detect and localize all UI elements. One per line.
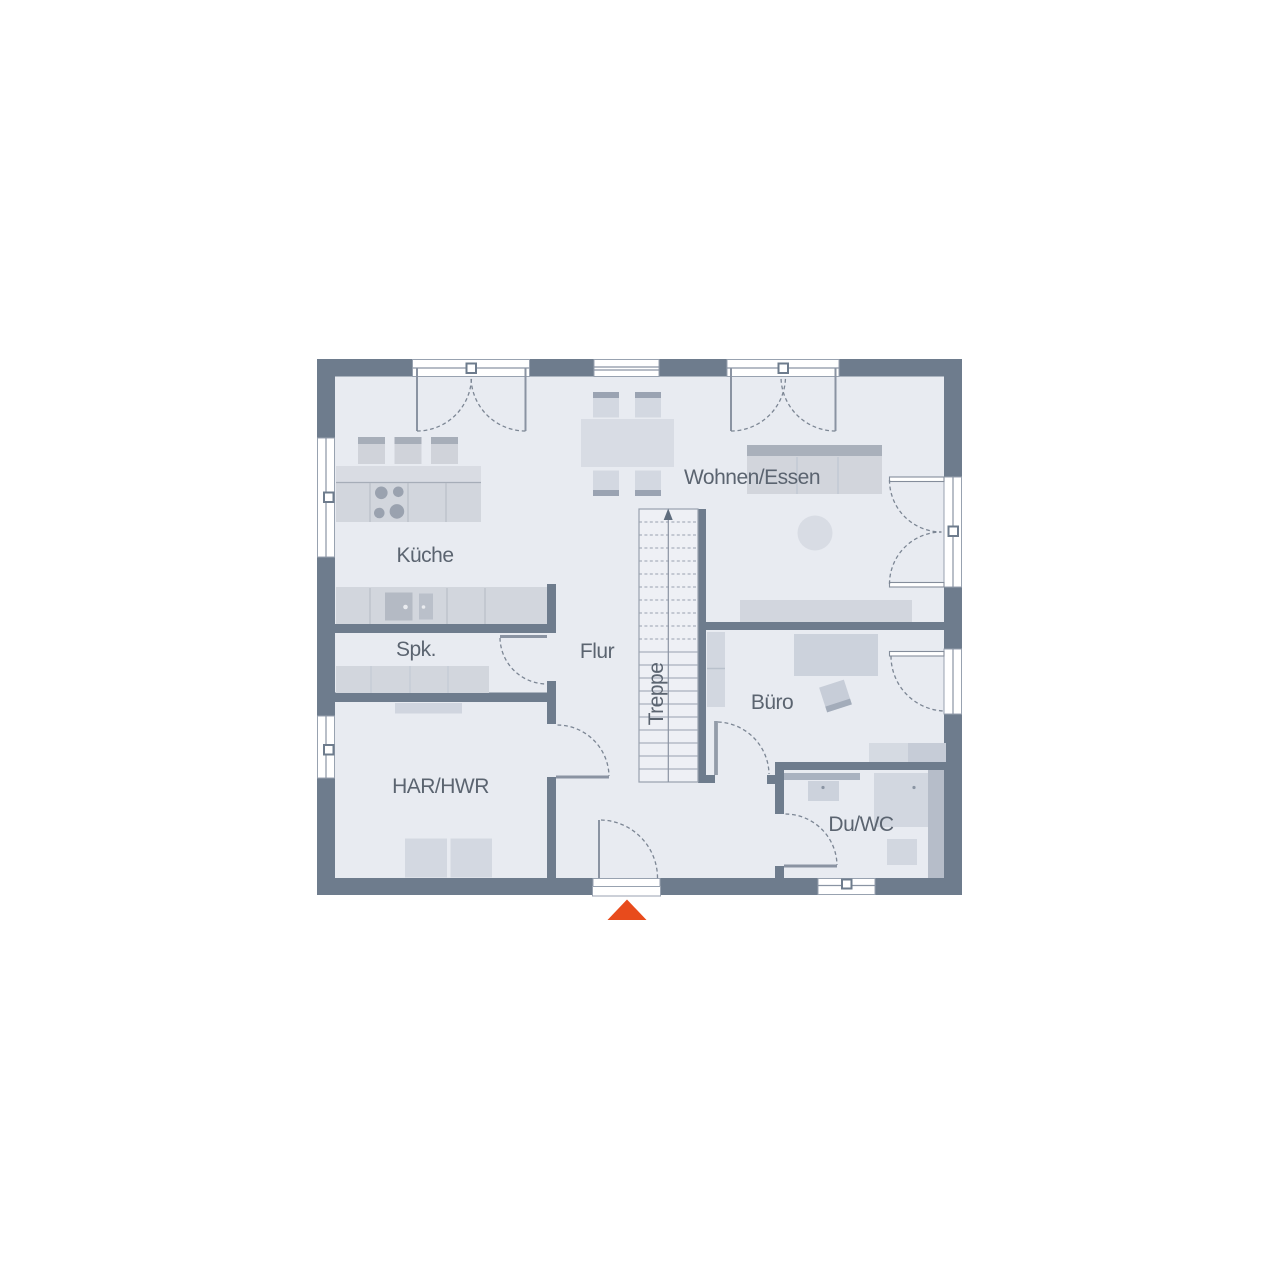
svg-text:Treppe: Treppe — [645, 663, 668, 726]
svg-text:HAR/HWR: HAR/HWR — [392, 775, 489, 798]
svg-text:Büro: Büro — [751, 691, 793, 714]
svg-text:Du/WC: Du/WC — [828, 813, 894, 836]
svg-text:Spk.: Spk. — [396, 638, 436, 661]
svg-text:Flur: Flur — [580, 640, 615, 663]
svg-text:Küche: Küche — [396, 544, 453, 567]
svg-text:Wohnen/Essen: Wohnen/Essen — [684, 466, 820, 489]
